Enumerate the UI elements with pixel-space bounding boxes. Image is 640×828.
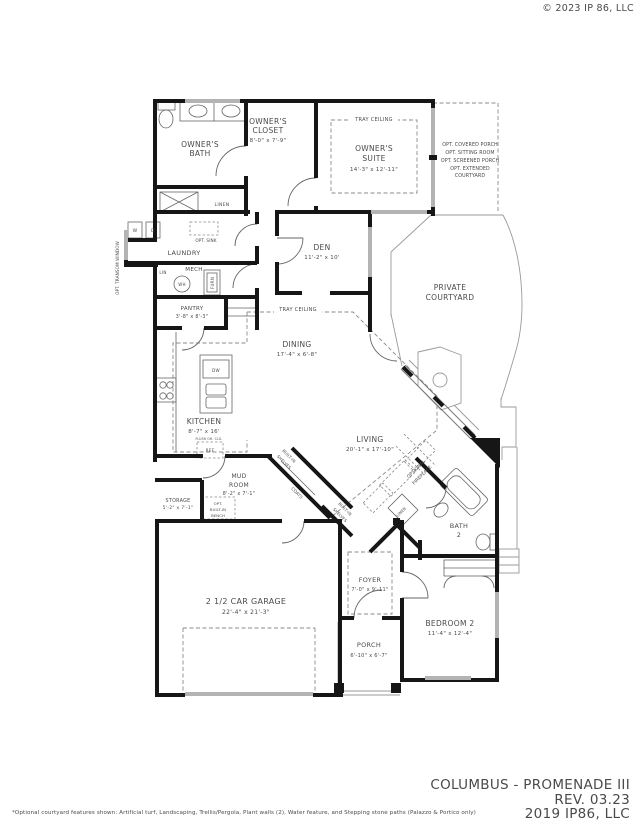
- label-foyer-dims: 7'-0" x 9'-11": [351, 587, 388, 593]
- label-courtyard2: COURTYARD: [426, 293, 475, 302]
- label-living-dims: 20'-1" x 17'-10": [346, 447, 394, 453]
- fixtures: [128, 101, 497, 576]
- label-garage: 2 1/2 CAR GARAGE: [206, 597, 287, 606]
- label-bedroom2-dims: 11'-4" x 12'-4": [428, 631, 472, 637]
- label-bedroom2: BEDROOM 2: [425, 619, 474, 628]
- porch-post-left: [334, 683, 344, 693]
- floor-plan-page: © 2023 IP 86, LLC: [0, 0, 640, 828]
- label-tray-dining: TRAY CEILING: [278, 307, 317, 313]
- wall-post: [393, 518, 400, 525]
- label-kitchen: KITCHEN: [187, 417, 222, 426]
- label-opt-extended: OPT. EXTENDED: [450, 166, 490, 172]
- label-den-dims: 11'-2" x 10': [304, 255, 339, 261]
- label-owners-bath: OWNER'S: [181, 140, 219, 149]
- label-owners-closet: OWNER'S: [249, 117, 287, 126]
- label-wh: WH: [178, 282, 186, 287]
- label-owners-suite: OWNER'S: [355, 144, 393, 153]
- label-pantry-dims: 3'-8" x 8'-3": [176, 314, 209, 320]
- label-opt-covered-porch: OPT. COVERED PORCH: [442, 142, 498, 148]
- label-bench: OPT.: [214, 501, 223, 506]
- label-kitchen-dims: 8'-7" x 16': [188, 429, 220, 435]
- label-garage-dims: 22'-4" x 21'-3": [222, 609, 270, 616]
- label-lin: LIN: [159, 270, 166, 275]
- label-opt-screened-porch: OPT. SCREENED PORCH: [441, 158, 500, 164]
- label-den: DEN: [313, 243, 330, 252]
- label-mud-room-dims: 8'-2" x 7'-1": [223, 491, 256, 497]
- label-laundry: LAUNDRY: [167, 249, 200, 257]
- label-owners-suite-dims: 14'-3" x 12'-11": [350, 167, 398, 173]
- label-bath2-num: 2: [457, 531, 461, 539]
- label-opt-sink: OPT. SINK: [195, 238, 216, 243]
- copyright-watermark: © 2023 IP 86, LLC: [542, 3, 634, 14]
- label-owners-bath2: BATH: [189, 149, 210, 158]
- label-tray-suite: TRAY CEILING: [354, 117, 393, 123]
- label-owners-closet-dims: 8'-0" x 7'-9": [250, 138, 287, 144]
- label-mud-room2: ROOM: [229, 482, 249, 489]
- footnote: *Optional courtyard features shown: Arti…: [12, 810, 476, 816]
- label-bench3: BENCH: [211, 513, 225, 518]
- plan-copyright: 2019 IP86, LLC: [525, 806, 630, 822]
- label-opt-sitting-room: OPT. SITTING ROOM: [445, 150, 494, 156]
- floor-plan-drawing: © 2023 IP 86, LLC: [0, 0, 640, 828]
- label-dw: DW: [212, 368, 220, 373]
- label-bench2: BUILT-IN: [210, 507, 226, 512]
- label-mech: MECH: [185, 267, 202, 273]
- label-dryer: D: [151, 228, 155, 234]
- label-owners-closet2: CLOSET: [253, 126, 284, 135]
- label-linen-hall: LINEN: [215, 202, 230, 208]
- dashed-small: [190, 222, 436, 519]
- label-dining-dims: 17'-4" x 6'-8": [277, 352, 318, 358]
- label-mud-room: MUD: [231, 473, 246, 480]
- label-living: LIVING: [357, 435, 384, 444]
- label-linen-bath: LINEN: [395, 506, 407, 518]
- label-courtyard: PRIVATE: [434, 283, 467, 292]
- label-storage: STORAGE: [166, 498, 191, 504]
- label-washer: W: [133, 228, 138, 234]
- plan-title: COLUMBUS - PROMENADE III: [430, 777, 630, 793]
- label-bath2: BATH: [450, 522, 468, 530]
- label-flush: FLUSH OH. CLG.: [196, 437, 223, 441]
- label-dining: DINING: [282, 340, 311, 349]
- label-opt-transom: OPT. TRANSOM WINDOW: [115, 241, 120, 295]
- porch-post-right: [391, 683, 401, 693]
- label-foyer: FOYER: [359, 576, 382, 584]
- label-pantry: PANTRY: [181, 306, 204, 312]
- label-storage-dims: 5'-2" x 7'-1": [163, 505, 194, 511]
- label-porch: PORCH: [357, 641, 381, 649]
- label-furn: FURN: [210, 277, 215, 289]
- label-ref: REF: [206, 448, 215, 453]
- label-owners-suite2: SUITE: [362, 154, 385, 163]
- label-porch-dims: 6'-10" x 6'-7": [350, 653, 387, 659]
- wall-wedge: [470, 438, 500, 468]
- label-opt-extended2: COURTYARD: [455, 173, 486, 179]
